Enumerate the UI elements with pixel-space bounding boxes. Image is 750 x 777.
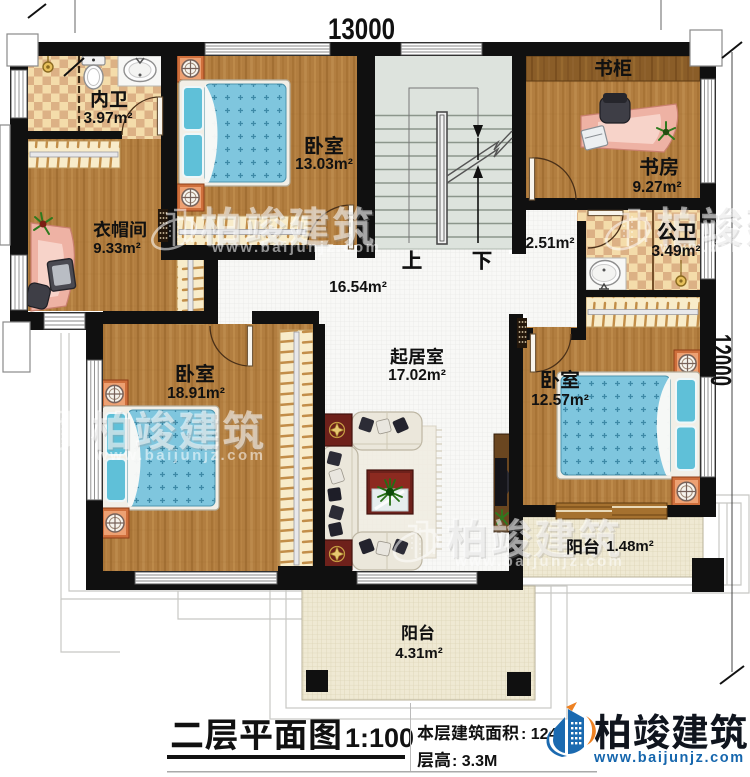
svg-text:18.91m²: 18.91m² <box>167 385 225 402</box>
svg-text:12.57m²: 12.57m² <box>531 392 589 409</box>
svg-text:2.51m²: 2.51m² <box>525 235 574 252</box>
svg-text:1.48m²: 1.48m² <box>606 538 654 555</box>
svg-text:www.baijunjz.com: www.baijunjz.com <box>95 447 265 464</box>
svg-text:16.54m²: 16.54m² <box>329 279 387 296</box>
svg-text:www.baijunjz.com: www.baijunjz.com <box>454 553 624 570</box>
svg-text:www.baijunjz.com: www.baijunjz.com <box>593 750 745 766</box>
svg-text:4.31m²: 4.31m² <box>395 645 443 662</box>
svg-text:1:100: 1:100 <box>345 723 414 753</box>
svg-text:12000: 12000 <box>704 334 736 386</box>
svg-text:13000: 13000 <box>328 13 395 46</box>
svg-text:9.27m²: 9.27m² <box>632 179 681 196</box>
svg-text:: 3.3M: : 3.3M <box>452 753 497 770</box>
svg-text:17.02m²: 17.02m² <box>388 367 446 384</box>
svg-text:www.baijunjz.com: www.baijunjz.com <box>211 239 381 256</box>
svg-text:3.97m²: 3.97m² <box>83 110 132 127</box>
svg-text:13.03m²: 13.03m² <box>295 156 353 173</box>
svg-text:9.33m²: 9.33m² <box>93 240 141 257</box>
svg-text:3.49m²: 3.49m² <box>651 243 700 260</box>
